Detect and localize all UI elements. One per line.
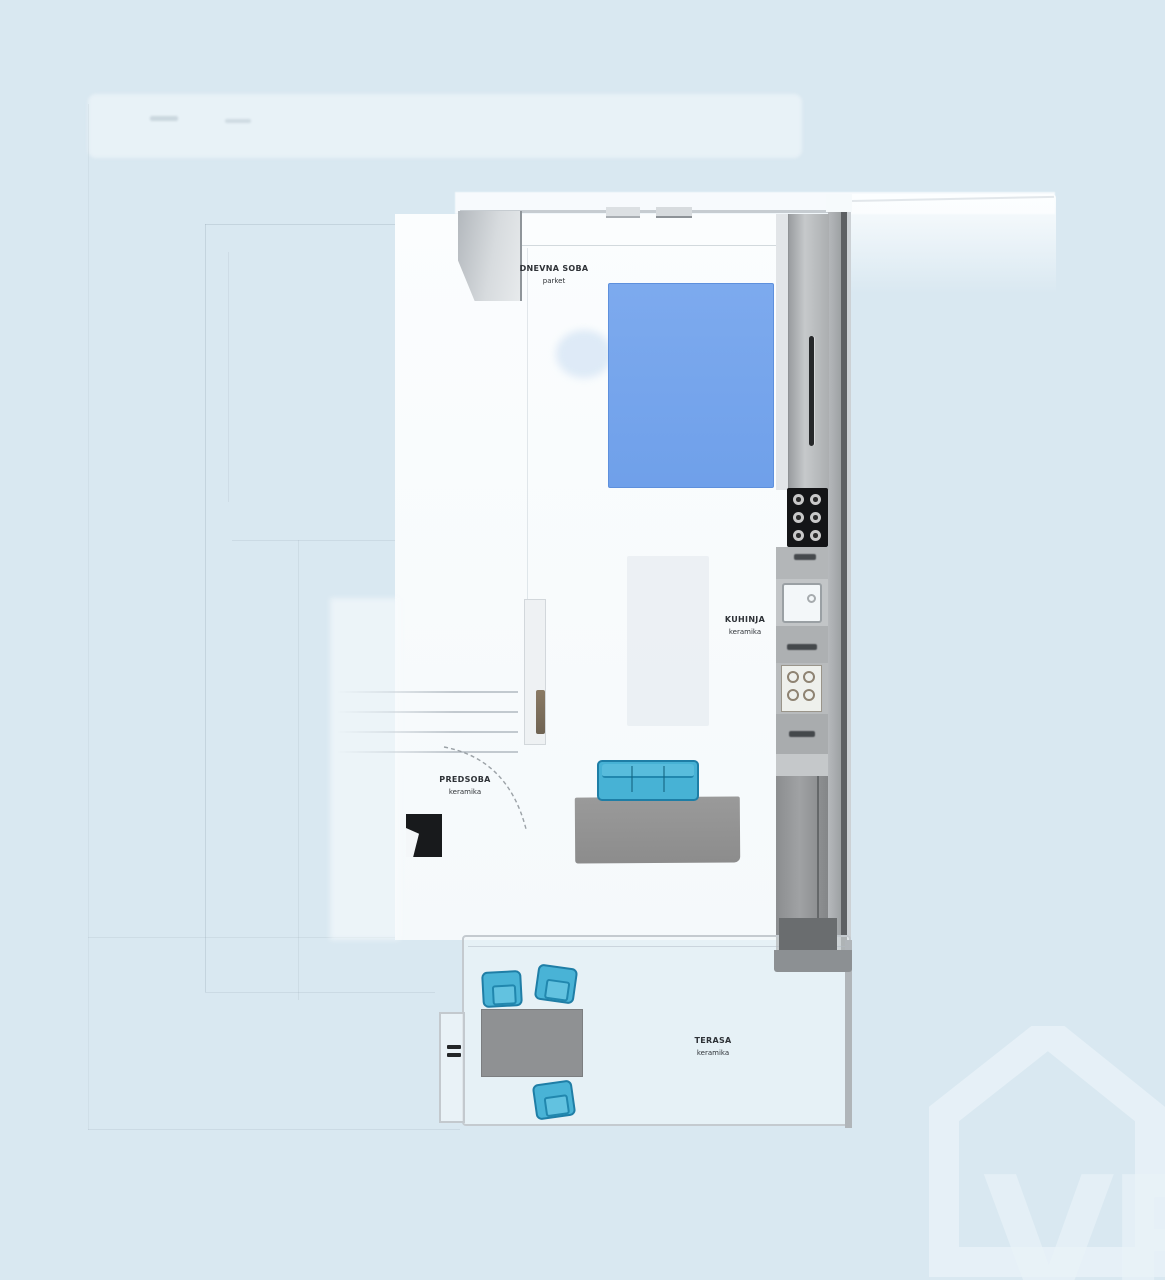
faint-wall-line (228, 252, 229, 502)
terrace-side-ledge (439, 1012, 465, 1123)
sofa-cushion-divider (631, 766, 633, 792)
armchair (534, 963, 579, 1004)
burner-icon (787, 689, 799, 701)
kitchen-wall-light-edge (847, 212, 851, 968)
room-label-hallway: PREDSOBA keramika (418, 774, 512, 798)
room-name: DNEVNA SOBA (498, 263, 610, 276)
faint-wall-line (205, 224, 206, 992)
faded-text-smudge (225, 119, 251, 123)
room-floor-type: keramika (418, 787, 512, 798)
armchair-seat (544, 979, 571, 1002)
cabinet-base (774, 950, 852, 972)
sofa-backrest (602, 764, 694, 778)
appliance-label-smudge (794, 554, 816, 560)
floor-plan-canvas: VR (0, 0, 1165, 1280)
room-floor-type: parket (498, 276, 610, 287)
faint-wall-line (88, 1129, 460, 1130)
burner-icon (787, 671, 799, 683)
vent-bar-icon (447, 1045, 461, 1049)
room-name: KUHINJA (703, 614, 787, 627)
oven-knob-icon (793, 530, 804, 541)
stair-tread-line (336, 691, 518, 693)
stair-tread-line (336, 711, 518, 713)
oven-knob-icon (793, 512, 804, 523)
faint-wall-line (88, 104, 89, 1130)
armchair-seat (544, 1094, 571, 1117)
oven-knob-icon (810, 512, 821, 523)
appliance-label-smudge (789, 731, 815, 737)
sofa-cushion-divider (663, 766, 665, 792)
sink-drain-icon (807, 594, 816, 603)
window-break (656, 207, 692, 218)
room-label-living-room: DNEVNA SOBA parket (498, 263, 610, 287)
stair-tread-line (336, 731, 518, 733)
appliance-label-smudge (787, 644, 817, 650)
vr-watermark: VR (928, 1026, 1165, 1280)
faint-wall-line (298, 540, 299, 1000)
room-floor-type: keramika (703, 627, 787, 638)
burner-icon (803, 689, 815, 701)
room-name: PREDSOBA (418, 774, 512, 787)
burner-icon (803, 671, 815, 683)
cooktop (781, 665, 822, 712)
blue-rug (608, 283, 774, 488)
blue-smudge (556, 330, 612, 378)
fading-white-wedge (838, 194, 1056, 294)
oven-knob-icon (810, 530, 821, 541)
armchair (481, 970, 523, 1008)
oven-knob-icon (810, 494, 821, 505)
armchair-seat (492, 984, 517, 1005)
faint-furniture-outline (627, 556, 709, 726)
room-floor-type: keramika (668, 1048, 758, 1059)
counter-segment-light (776, 754, 828, 776)
counter-segment (776, 547, 828, 579)
window-break (606, 207, 640, 218)
armchair (532, 1079, 577, 1120)
sideboard-table (575, 796, 740, 863)
faded-text-smudge (150, 116, 178, 121)
sofa (597, 760, 699, 801)
door-handle (536, 690, 545, 734)
wall-cap (826, 194, 852, 212)
faint-wall-line (205, 992, 435, 993)
faded-header-block (88, 94, 802, 158)
interior-wall-line (527, 248, 528, 600)
cabinet-handle (809, 336, 814, 446)
room-name: TERASA (668, 1035, 758, 1048)
oven-appliance (787, 488, 828, 547)
oven-knob-icon (793, 494, 804, 505)
watermark-text: VR (983, 1141, 1165, 1280)
sink (782, 583, 822, 623)
room-label-terrace: TERASA keramika (668, 1035, 758, 1059)
room-label-kitchen: KUHINJA keramika (703, 614, 787, 638)
hallway-floor-wash (330, 598, 400, 940)
vent-bar-icon (447, 1053, 461, 1057)
terrace-table (481, 1009, 583, 1077)
